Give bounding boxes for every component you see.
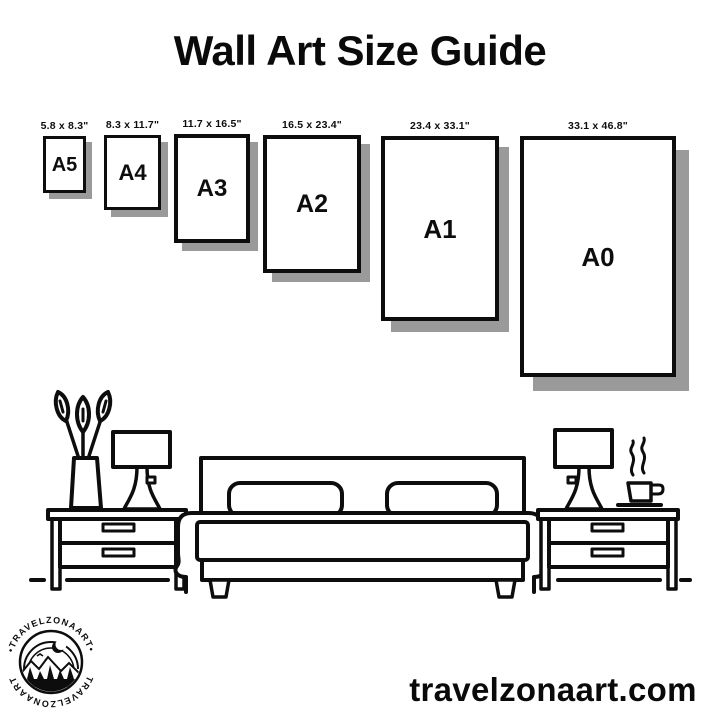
left-nightstand-icon (48, 510, 186, 589)
bed-base-icon (202, 560, 523, 580)
bed-foot-icon (210, 580, 229, 597)
bed-foot-icon (496, 580, 515, 597)
drawer-handle-icon (103, 549, 134, 556)
drawer-handle-icon (592, 549, 623, 556)
drawer-handle-icon (103, 524, 134, 531)
double-bed-icon (175, 458, 544, 597)
brand-logo-badge: •TRAVELZONAART• TRAVELZONAART (1, 615, 101, 715)
website-url: travelzonaart.com (388, 673, 718, 706)
left-table-lamp-icon (113, 432, 170, 509)
right-table-lamp-icon (555, 430, 612, 509)
drawer-handle-icon (592, 524, 623, 531)
vase-with-leaves-icon (56, 392, 110, 508)
bedroom-illustration (0, 0, 720, 720)
right-nightstand-icon (538, 510, 678, 589)
wall-art-size-guide-poster: Wall Art Size Guide 5.8 x 8.3" A5 8.3 x … (0, 0, 720, 720)
mattress-icon (197, 522, 528, 560)
coffee-cup-icon (618, 438, 663, 505)
steam-icon (642, 438, 645, 473)
steam-icon (631, 441, 634, 475)
